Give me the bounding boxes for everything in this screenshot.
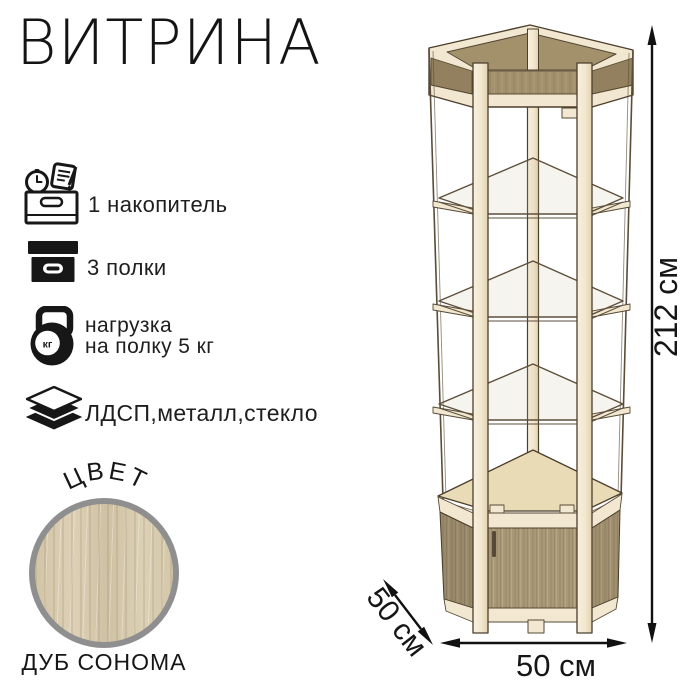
glass-shelf-2: [433, 261, 630, 321]
product-card: ВИТРИНА 1 накопитель 3 полки кг нагрузка…: [0, 0, 700, 700]
width-dimension: 50 см: [440, 638, 627, 683]
cabinet-top: [438, 450, 622, 511]
feature-label-storage: 1 накопитель: [88, 192, 227, 218]
feature-label-shelves: 3 полки: [87, 255, 167, 281]
vitrine-structure: [429, 25, 633, 633]
svg-text:ЦВЕТ: ЦВЕТ: [59, 456, 153, 495]
arrow-right-icon: [607, 638, 627, 648]
color-name: ДУБ СОНОМА: [0, 649, 208, 676]
storage-drawer-icon: [24, 162, 80, 226]
color-heading-arc: ЦВЕТ: [50, 456, 162, 504]
width-label: 50 см: [516, 648, 596, 683]
arrow-left-icon: [440, 638, 460, 648]
height-dimension: 212 см: [648, 25, 685, 643]
crown-fascia-front: [472, 71, 592, 94]
height-label: 212 см: [648, 257, 684, 357]
page-title: ВИТРИНА: [16, 6, 322, 79]
color-swatch-sonoma-oak: [29, 498, 179, 648]
layers-icon: [26, 386, 82, 431]
arrow-down-icon: [648, 623, 657, 643]
glass-shelf-3: [433, 364, 630, 424]
front-left-post: [473, 63, 488, 633]
cabinet-door: [473, 528, 592, 608]
showcase-drawing: 212 см 50 см 50 см: [350, 0, 700, 700]
feature-label-load-line1: нагрузка: [85, 315, 172, 336]
cabinet-door-handle: [492, 531, 496, 557]
kettlebell-icon: кг: [26, 306, 80, 367]
arrow-up-icon: [648, 25, 657, 45]
kettlebell-kg-label: кг: [43, 339, 53, 351]
feature-label-load-line2: на полку 5 кг: [85, 336, 214, 357]
glass-shelf-1: [433, 158, 630, 218]
front-right-post: [577, 63, 592, 633]
color-heading: ЦВЕТ: [59, 456, 153, 495]
shelf-box-icon: [28, 241, 78, 282]
feature-label-materials: ЛДСП,металл,стекло: [85, 400, 318, 427]
depth-dimension: 50 см: [360, 579, 434, 663]
